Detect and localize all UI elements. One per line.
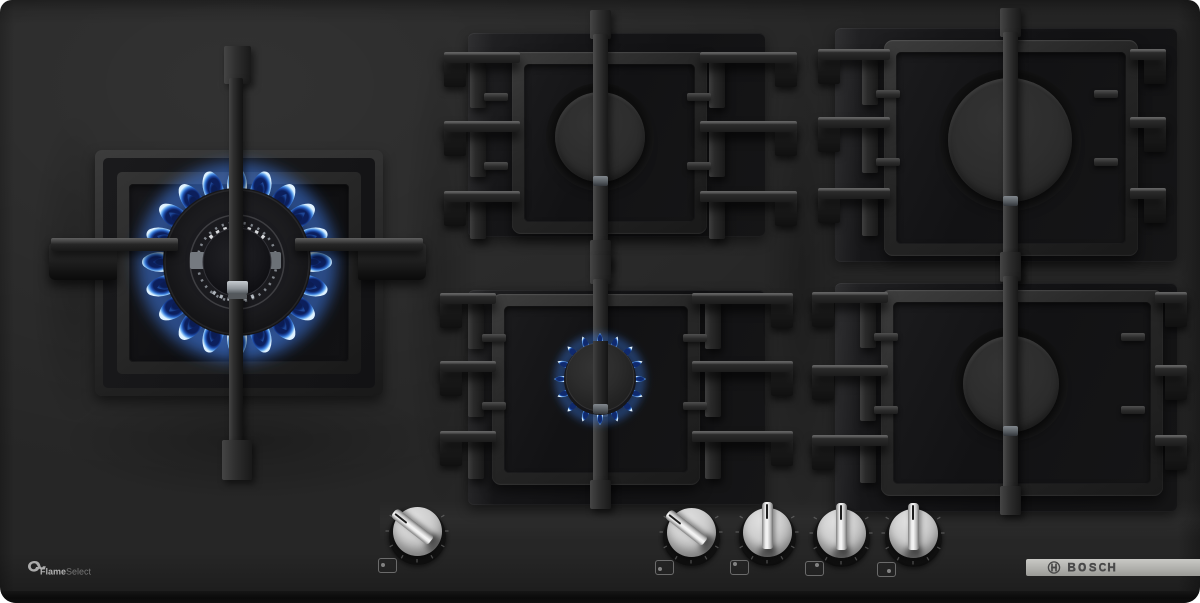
- svg-text:FlameSelect: FlameSelect: [40, 567, 92, 577]
